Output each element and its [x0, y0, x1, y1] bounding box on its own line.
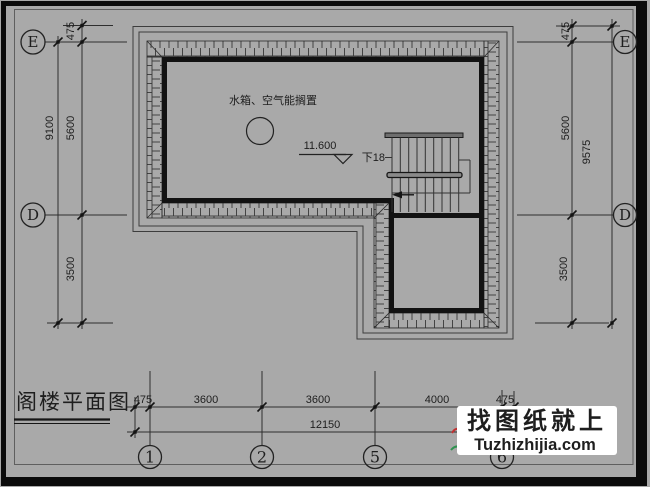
wall-left — [147, 57, 162, 218]
svg-text:2: 2 — [257, 448, 267, 467]
level-triangle-icon — [334, 155, 352, 164]
dim-bottom-seg3: 4000 — [425, 394, 449, 406]
axis-bubble-e-left: E — [21, 30, 45, 54]
axis-bubble-d-left: D — [21, 203, 45, 227]
dim-lines-right — [535, 19, 620, 329]
stair-down-label: 下18 — [362, 152, 385, 164]
eave-line-outer — [133, 27, 513, 340]
frame-bottom — [1, 477, 647, 486]
wall-corner-miters — [147, 41, 499, 328]
dim-left-upper: 5600 — [65, 116, 77, 140]
room-label: 水箱、空气能搁置 — [229, 93, 317, 107]
axis-bubble-5: 5 — [364, 446, 387, 469]
dim-left-lower: 3500 — [65, 257, 77, 281]
svg-text:E: E — [28, 33, 39, 51]
wall-right — [484, 41, 499, 328]
wall-top — [147, 41, 484, 57]
watermark-site-name: 找图纸就上 — [467, 407, 607, 435]
svg-text:5: 5 — [370, 448, 380, 467]
dim-right-total: 9575 — [581, 140, 593, 164]
stair-top-rail — [385, 133, 463, 138]
wall-ext-bottom — [389, 313, 484, 328]
dimensions-right: 475 5600 9575 3500 — [535, 19, 620, 329]
dimensions-left: 475 9100 5600 3500 — [44, 19, 113, 329]
stair-handrail — [387, 173, 462, 178]
wall-room-bottom — [162, 203, 374, 218]
dim-right-lower: 3500 — [558, 257, 570, 281]
svg-text:E: E — [620, 33, 631, 51]
watermark-site-url: Tuzhizhijia.com — [474, 436, 596, 454]
grid-system — [45, 42, 614, 446]
eave-outline — [133, 27, 513, 340]
water-tank-circle — [247, 118, 274, 145]
dim-right-eave: 475 — [560, 22, 572, 40]
room-walls — [162, 57, 484, 313]
dim-lines-left — [47, 19, 113, 329]
watermark: 找图纸就上 Tuzhizhijia.com — [457, 406, 617, 455]
dim-bottom-eave-left: 475 — [134, 394, 152, 406]
wall-hatch — [147, 41, 499, 328]
axis-bubble-2: 2 — [251, 446, 274, 469]
svg-text:D: D — [619, 206, 631, 224]
axis-bubble-1: 1 — [139, 446, 162, 469]
dim-right-upper: 5600 — [560, 116, 572, 140]
level-value: 11.600 — [304, 140, 337, 152]
frame-top — [1, 1, 647, 6]
level-marker: 11.600 — [299, 140, 352, 164]
wall-ext-left — [374, 203, 389, 328]
dim-left-eave: 475 — [65, 22, 77, 40]
dim-bottom-eave-right: 475 — [496, 394, 514, 406]
eave-line-inner — [139, 32, 507, 333]
title-block: 阁楼平面图 — [14, 391, 131, 424]
floor-plan-canvas: 下18 水箱、空气能搁置 11.600 E D E — [0, 0, 650, 487]
svg-text:1: 1 — [145, 448, 155, 467]
svg-text:D: D — [27, 206, 39, 224]
dim-left-total: 9100 — [44, 116, 56, 140]
dim-bottom-seg1: 3600 — [194, 394, 218, 406]
drawing-title: 阁楼平面图 — [16, 391, 131, 414]
water-tank: 水箱、空气能搁置 — [229, 93, 317, 145]
dim-bottom-total: 12150 — [310, 419, 341, 431]
attic-floor-plan-sheet: 下18 水箱、空气能搁置 11.600 E D E — [0, 0, 650, 487]
dim-bottom-seg2: 3600 — [306, 394, 330, 406]
frame-left — [1, 1, 6, 481]
frame-right — [636, 1, 647, 481]
stair-direction-arrow — [392, 191, 414, 198]
